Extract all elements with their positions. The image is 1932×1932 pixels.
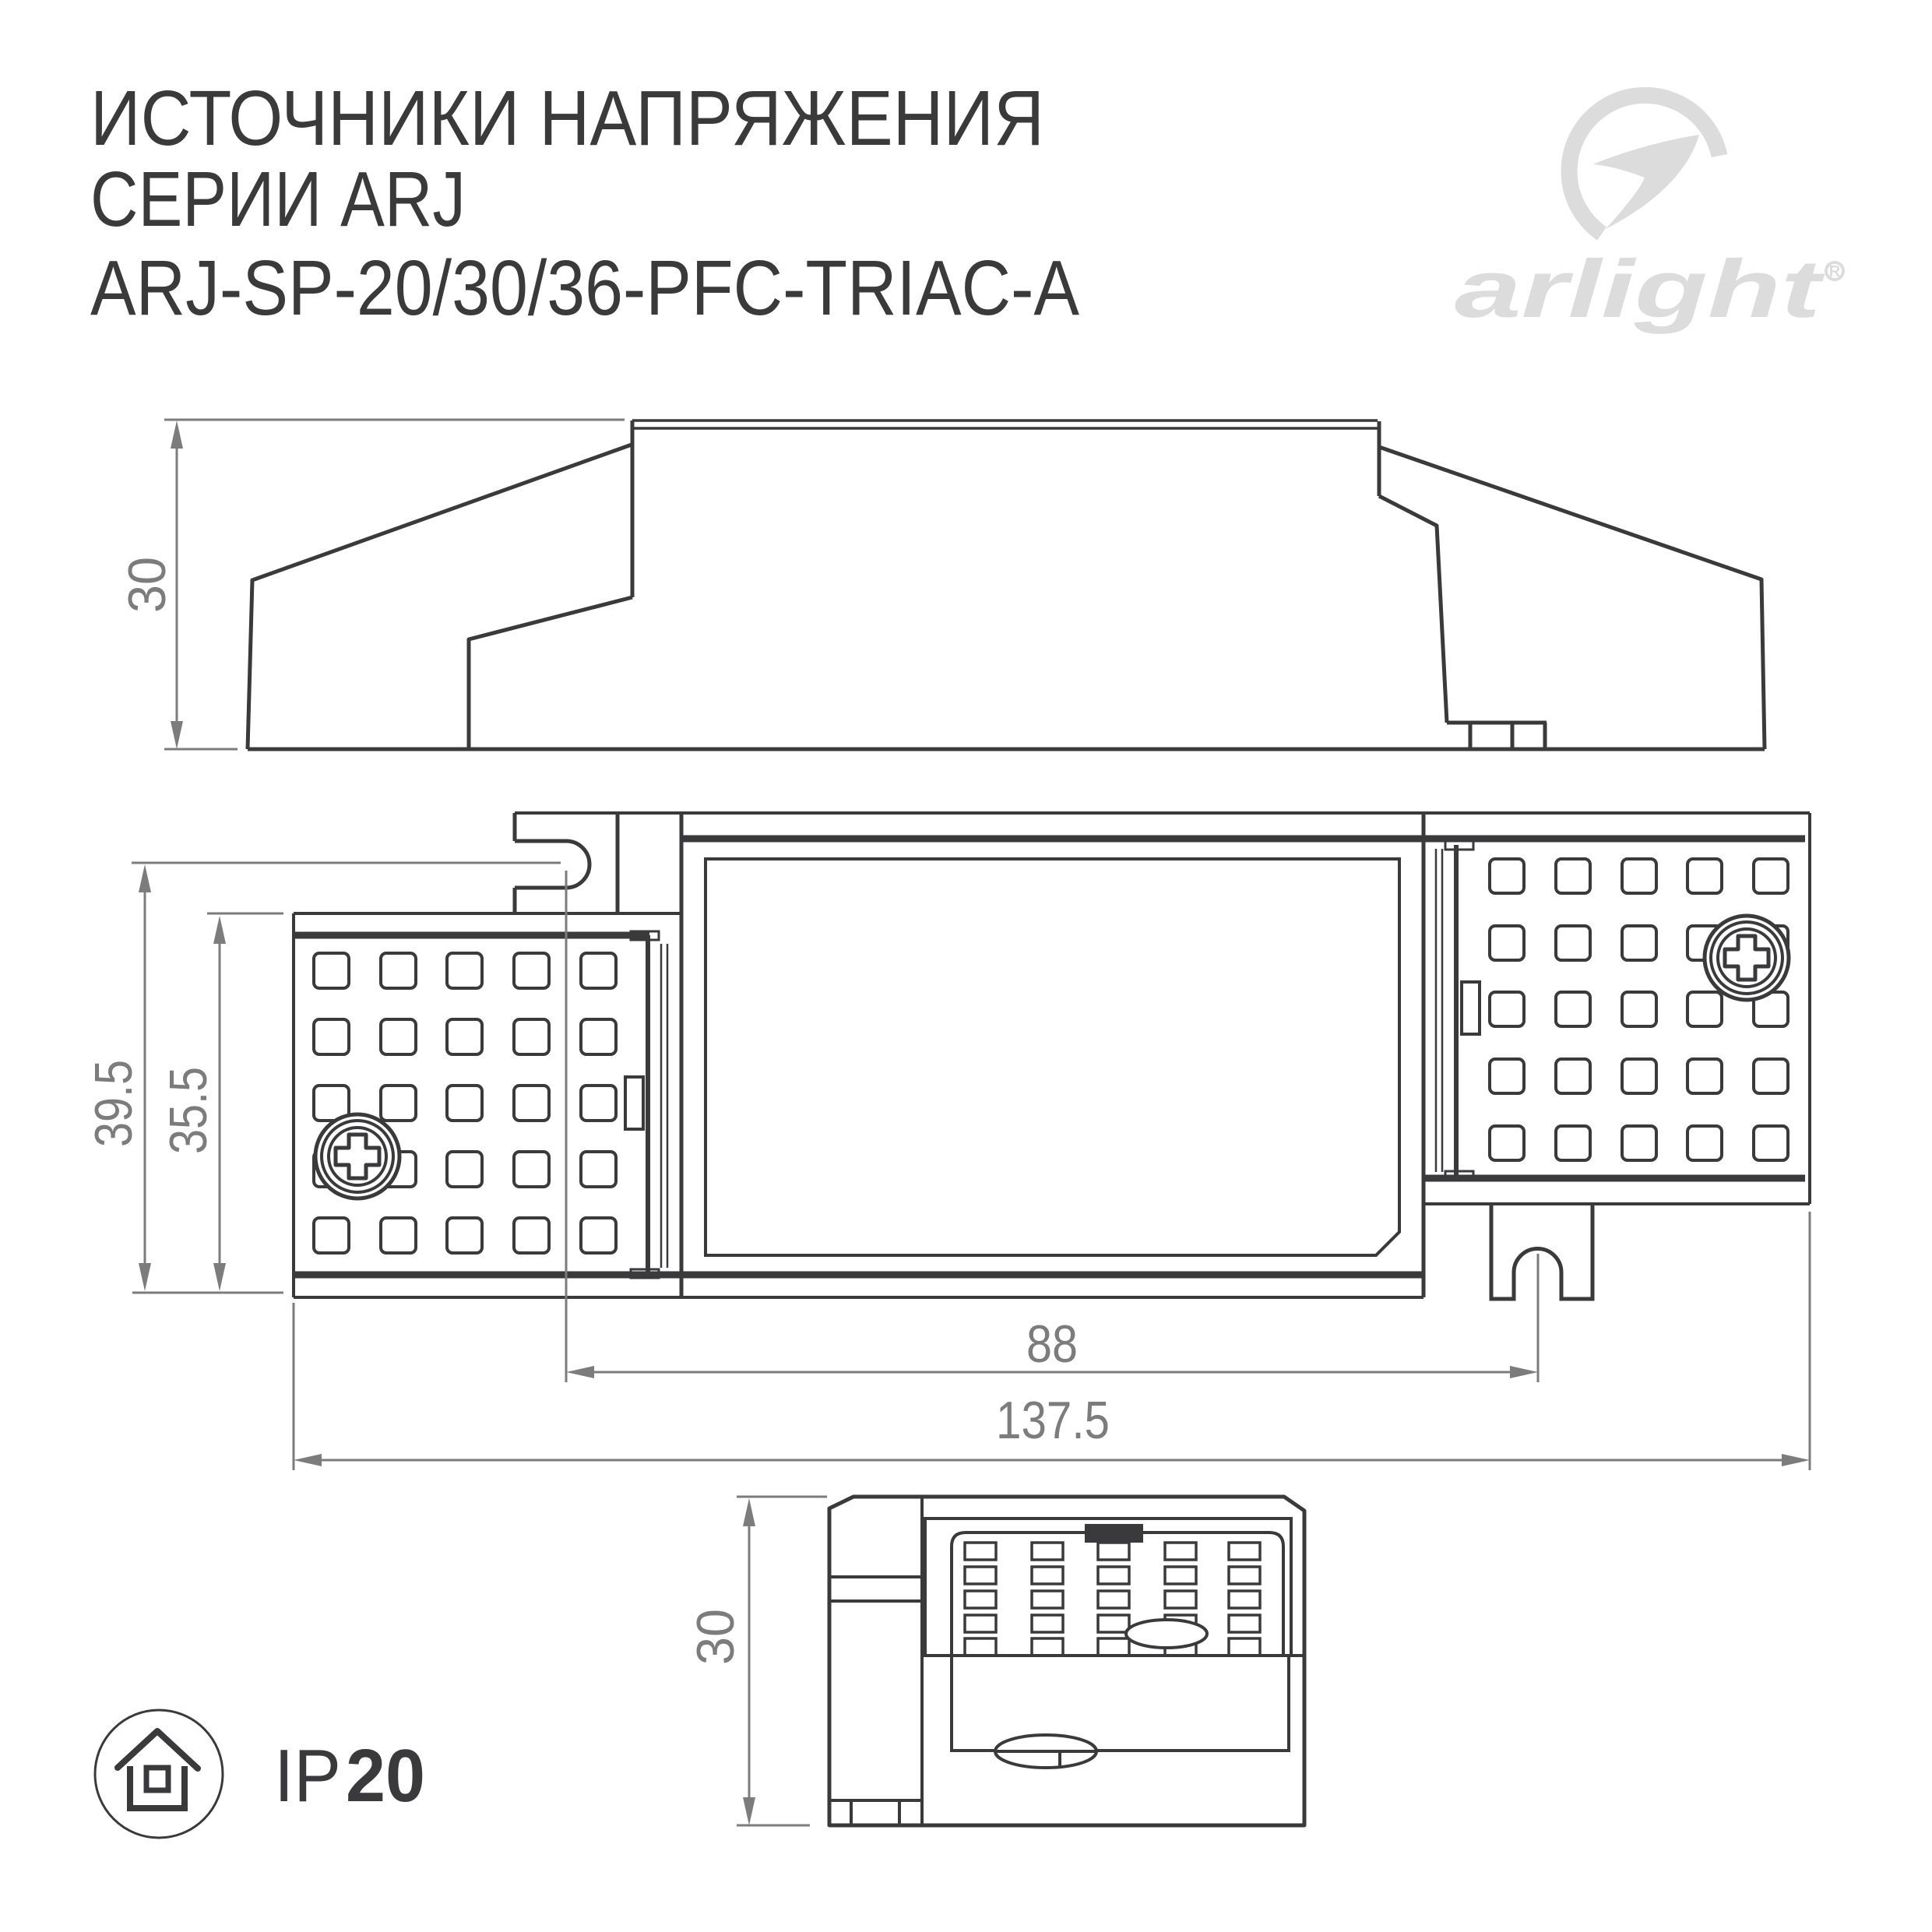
svg-text:35.5: 35.5 — [159, 1067, 218, 1154]
svg-text:137.5: 137.5 — [996, 1391, 1110, 1450]
svg-text:30: 30 — [118, 557, 177, 613]
svg-text:ARJ-SP-20/30/36-PFC-TRIAC-A: ARJ-SP-20/30/36-PFC-TRIAC-A — [90, 245, 1079, 332]
svg-text:СЕРИИ ARJ: СЕРИИ ARJ — [90, 156, 466, 243]
svg-text:R: R — [1829, 263, 1841, 280]
svg-text:IP: IP — [274, 1734, 341, 1818]
svg-text:88: 88 — [1026, 1314, 1078, 1374]
svg-text:39.5: 39.5 — [84, 1060, 143, 1147]
svg-text:arlight: arlight — [1455, 244, 1825, 335]
svg-text:ИСТОЧНИКИ НАПРЯЖЕНИЯ: ИСТОЧНИКИ НАПРЯЖЕНИЯ — [90, 75, 1044, 162]
svg-text:20: 20 — [346, 1734, 425, 1818]
svg-text:30: 30 — [686, 1609, 745, 1665]
